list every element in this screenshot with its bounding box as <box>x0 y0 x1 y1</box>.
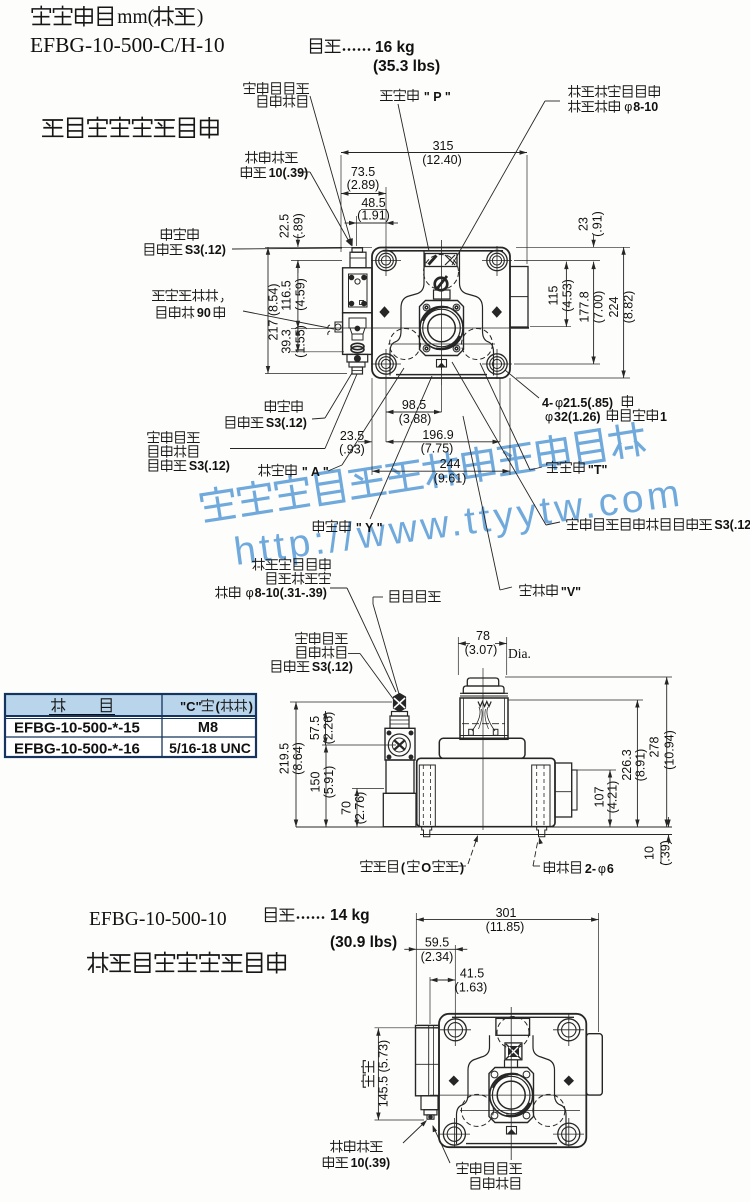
svg-text:mm(: mm( <box>117 7 154 28</box>
svg-text:S3(.12): S3(.12) <box>312 660 353 674</box>
svg-text:59.5: 59.5 <box>425 936 449 950</box>
svg-text:(30.9 lbs): (30.9 lbs) <box>330 934 397 951</box>
svg-text:8-10: 8-10 <box>633 100 658 114</box>
svg-text:196.9: 196.9 <box>422 428 453 442</box>
svg-text:(4.21): (4.21) <box>606 781 620 814</box>
svg-text:): ) <box>197 7 204 28</box>
svg-text:φ: φ <box>545 410 553 424</box>
svg-text:" A ": " A " <box>302 465 329 479</box>
svg-text:315: 315 <box>433 139 454 153</box>
svg-text:(7.75): (7.75) <box>421 442 454 456</box>
svg-text:219.5: 219.5 <box>278 743 292 774</box>
svg-text:6: 6 <box>607 862 614 876</box>
svg-text:5/16-18 UNC: 5/16-18 UNC <box>169 740 251 756</box>
svg-text:(10.94): (10.94) <box>663 730 677 770</box>
svg-text:EFBG-10-500-10: EFBG-10-500-10 <box>89 909 227 930</box>
svg-text:(.91): (.91) <box>591 211 605 237</box>
svg-text:(4.59): (4.59) <box>294 278 308 311</box>
svg-text:39.3: 39.3 <box>280 329 294 353</box>
svg-text:S3(.12): S3(.12) <box>266 416 307 430</box>
svg-text:70: 70 <box>340 801 354 815</box>
svg-text:EFBG-10-500-C/H-10: EFBG-10-500-C/H-10 <box>30 33 225 57</box>
svg-text:): ) <box>249 699 253 714</box>
svg-text:1: 1 <box>660 410 667 424</box>
svg-text:EFBG-10-500-*-15: EFBG-10-500-*-15 <box>14 720 140 737</box>
svg-text:115: 115 <box>547 285 561 305</box>
svg-text:278: 278 <box>648 737 662 758</box>
svg-text:57.5: 57.5 <box>308 716 322 740</box>
svg-text:(2.89): (2.89) <box>347 178 380 192</box>
svg-text:(.39): (.39) <box>659 840 673 866</box>
svg-text:EFBG-10-500-*-16: EFBG-10-500-*-16 <box>14 741 140 758</box>
svg-text:(11.85): (11.85) <box>486 920 525 934</box>
svg-text:(1.55): (1.55) <box>294 325 308 358</box>
svg-text:10(.39): 10(.39) <box>351 1156 391 1170</box>
svg-text:8-10(.31-.39): 8-10(.31-.39) <box>255 586 327 600</box>
svg-text:23: 23 <box>577 217 591 231</box>
svg-text:244: 244 <box>440 457 461 471</box>
svg-text:226.3: 226.3 <box>620 749 634 780</box>
svg-text:107: 107 <box>593 787 607 808</box>
svg-text:116.5: 116.5 <box>280 280 294 310</box>
svg-text:4-: 4- <box>542 396 553 410</box>
svg-text:S3(.12): S3(.12) <box>185 243 226 257</box>
svg-text:Dia.: Dia. <box>508 646 531 661</box>
svg-text:" P ": " P " <box>424 90 451 104</box>
svg-text:φ: φ <box>555 396 563 410</box>
svg-text:(1.63): (1.63) <box>455 981 488 995</box>
svg-text:φ: φ <box>624 100 632 114</box>
svg-text:(: ( <box>216 699 221 714</box>
svg-text:S3(.12): S3(.12) <box>714 518 750 532</box>
svg-text:32(1.26): 32(1.26) <box>554 410 601 424</box>
svg-text:301: 301 <box>496 906 517 920</box>
svg-text:217 (8.54): 217 (8.54) <box>267 284 281 341</box>
svg-text:78: 78 <box>476 629 490 643</box>
svg-text:(2.26): (2.26) <box>322 712 336 745</box>
svg-text:98.5: 98.5 <box>402 398 426 412</box>
svg-text:14 kg: 14 kg <box>330 907 370 924</box>
svg-text:(5.91): (5.91) <box>322 766 336 799</box>
svg-text:(8.91): (8.91) <box>634 749 648 782</box>
svg-text:φ: φ <box>598 862 606 876</box>
svg-text:10: 10 <box>643 846 657 860</box>
svg-text:73.5: 73.5 <box>351 165 375 179</box>
svg-text:(2.34): (2.34) <box>421 950 454 964</box>
svg-text:10(.39): 10(.39) <box>269 166 309 180</box>
svg-text:150: 150 <box>309 772 323 793</box>
svg-text:φ: φ <box>246 586 254 600</box>
svg-text:224: 224 <box>607 297 621 318</box>
svg-text:(12.40): (12.40) <box>422 153 462 167</box>
svg-text:90: 90 <box>197 306 211 320</box>
svg-text:2-: 2- <box>585 862 596 876</box>
svg-text:"V": "V" <box>561 585 581 599</box>
svg-text:S3(.12): S3(.12) <box>189 459 230 473</box>
svg-text:41.5: 41.5 <box>460 967 484 981</box>
svg-text:16 kg: 16 kg <box>375 39 415 56</box>
svg-text:22.5: 22.5 <box>278 214 292 238</box>
svg-text:21.5(.85): 21.5(.85) <box>563 396 613 410</box>
svg-text:(1.91): (1.91) <box>357 209 390 223</box>
svg-text:(9.61): (9.61) <box>434 472 467 486</box>
svg-text:M8: M8 <box>198 720 218 736</box>
svg-text:177.8: 177.8 <box>578 291 592 322</box>
svg-text:): ) <box>460 860 464 875</box>
svg-text:(3.07): (3.07) <box>465 643 498 657</box>
svg-text:(: ( <box>401 860 406 875</box>
svg-text:"T": "T" <box>588 463 608 477</box>
svg-text:(2.76): (2.76) <box>353 792 367 825</box>
svg-text:"C": "C" <box>180 699 202 714</box>
svg-text:(.89): (.89) <box>292 213 306 239</box>
svg-text:(35.3 lbs): (35.3 lbs) <box>373 58 440 75</box>
svg-text:(4.53): (4.53) <box>561 279 575 312</box>
svg-text:" Y ": " Y " <box>356 521 383 535</box>
svg-text:(8.64): (8.64) <box>291 742 305 775</box>
svg-text:O: O <box>421 860 431 875</box>
